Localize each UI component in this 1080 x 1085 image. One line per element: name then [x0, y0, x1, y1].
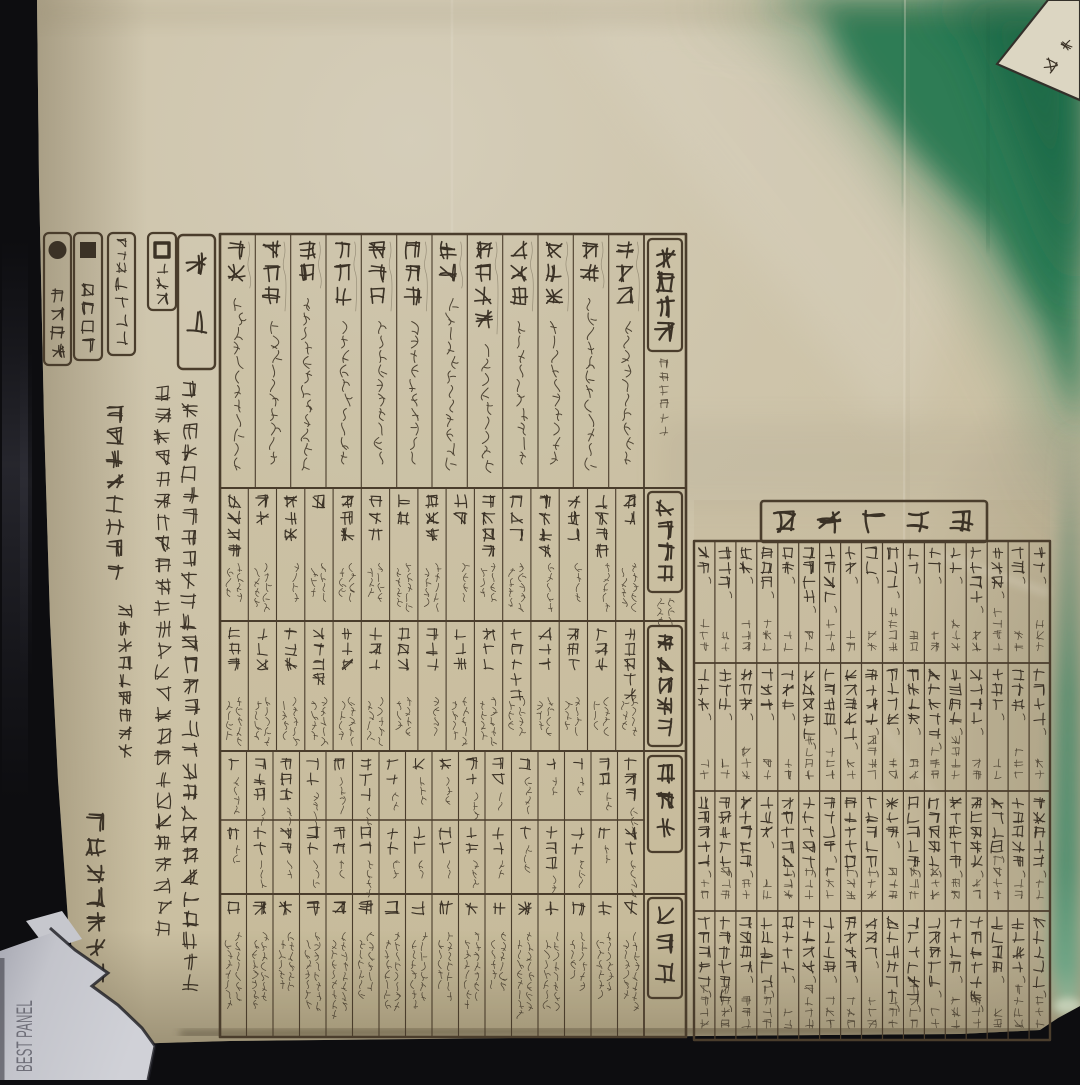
svg-text:BEST PANEL: BEST PANEL — [12, 1000, 37, 1072]
